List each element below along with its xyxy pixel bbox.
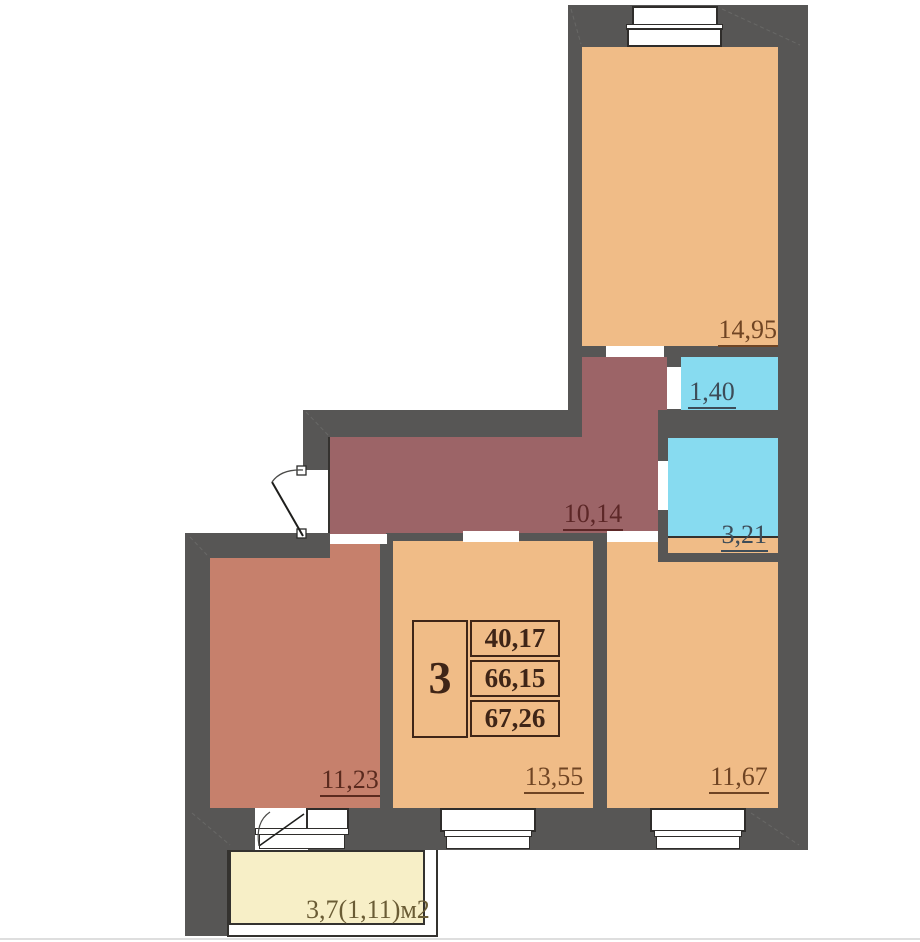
wall-segment bbox=[185, 533, 210, 850]
wall-segment bbox=[185, 850, 227, 936]
window-icon bbox=[627, 28, 722, 47]
area-label-room-right: 11,67 bbox=[708, 763, 770, 790]
wall-segment bbox=[658, 410, 778, 438]
image-edge-line bbox=[0, 938, 920, 940]
wall-segment bbox=[380, 535, 393, 808]
area-label-room-middle: 13,55 bbox=[522, 763, 586, 790]
wall-segment bbox=[568, 44, 582, 437]
entry-door-leaf-icon bbox=[272, 482, 303, 536]
door-opening-bath-small bbox=[667, 367, 681, 409]
door-opening-room-middle bbox=[463, 531, 519, 542]
unit-area: 66,15 bbox=[470, 660, 560, 697]
wall-segment bbox=[386, 533, 463, 541]
door-opening-room-left bbox=[330, 534, 387, 544]
window-icon bbox=[440, 808, 536, 832]
door-opening-room-right bbox=[607, 531, 658, 542]
wall-segment bbox=[303, 410, 582, 437]
window-icon bbox=[259, 834, 345, 849]
unit-living-area: 40,17 bbox=[470, 620, 560, 657]
window-icon bbox=[656, 836, 740, 849]
hallway-upper bbox=[578, 350, 670, 440]
unit-info-table: 3 40,17 66,15 67,26 bbox=[412, 620, 560, 738]
wall-segment bbox=[658, 553, 778, 562]
wall-segment bbox=[303, 437, 328, 470]
area-label-bathroom-large: 3,21 bbox=[702, 521, 768, 548]
room-top-bedroom bbox=[578, 44, 780, 350]
unit-number: 3 bbox=[412, 620, 468, 738]
area-label-room-top: 14,95 bbox=[690, 316, 778, 343]
door-opening-room-top bbox=[606, 346, 664, 357]
window-icon bbox=[650, 808, 746, 832]
window-icon bbox=[632, 6, 718, 26]
area-label-balcony: 3,7(1,11)м2 bbox=[306, 896, 424, 923]
floor-plan-page: { "plan": { "kind": "apartment-floor-pla… bbox=[0, 0, 920, 942]
area-label-room-left: 11,23 bbox=[320, 766, 380, 793]
window-icon bbox=[446, 836, 530, 849]
entry-door-arc-icon bbox=[272, 470, 303, 482]
wall-segment bbox=[778, 44, 808, 850]
wall-segment bbox=[593, 533, 607, 808]
unit-total-area: 67,26 bbox=[470, 700, 560, 737]
area-label-hallway: 10,14 bbox=[562, 500, 624, 527]
door-opening-bath-large bbox=[658, 461, 668, 510]
floor-plan: 14,95 1,40 3,21 10,14 11,23 13,55 11,67 … bbox=[0, 0, 920, 942]
area-label-bathroom-small: 1,40 bbox=[686, 378, 738, 405]
